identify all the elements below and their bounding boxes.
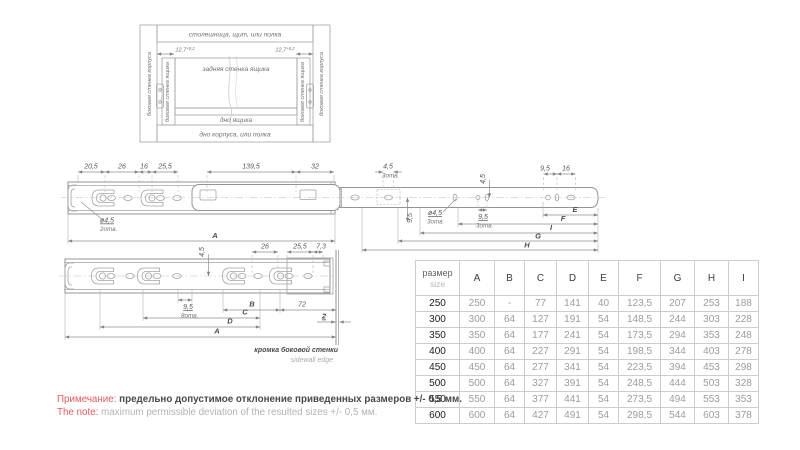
value-cell: 77 — [525, 296, 557, 312]
value-cell: 291 — [557, 344, 589, 360]
value-cell: 550 — [460, 392, 495, 408]
table-row: 550 550 64 377 441 54 273,5 494 553 353 — [416, 392, 759, 408]
value-cell: 273,5 — [619, 392, 661, 408]
value-cell: 127 — [525, 312, 557, 328]
dim-26: 26 — [117, 164, 126, 171]
note-line-ru: Примечание: предельно допустимое отклоне… — [57, 394, 462, 407]
dim-v4-5: 4,5 — [480, 174, 487, 184]
col-E: E — [589, 261, 619, 296]
value-cell: 64 — [495, 360, 525, 376]
value-cell: 64 — [495, 408, 525, 424]
dim-r9-5: 9,5 — [540, 166, 550, 173]
value-cell: 228 — [729, 312, 759, 328]
value-cell: 227 — [525, 344, 557, 360]
value-cell: 327 — [525, 376, 557, 392]
dim-F: F — [561, 214, 566, 223]
col-G: G — [661, 261, 695, 296]
table-header-row: размер size A B C D E F G H I — [416, 261, 759, 296]
installation-diagram: 12,7+0,2 12,7+0,2 столешница, щит, или п… — [133, 12, 333, 147]
slide-front-view — [59, 250, 339, 345]
dim-4-5-count: 3отв. — [382, 173, 399, 180]
top-panel-label: столешница, щит, или полка — [189, 32, 282, 39]
table-row: 350 350 64 177 241 54 173,5 294 353 248 — [416, 328, 759, 344]
table-row: 600 600 64 427 491 54 298,5 544 603 378 — [416, 408, 759, 424]
dim-v9-5: 9,5 — [407, 213, 414, 223]
value-cell: 603 — [695, 408, 729, 424]
size-cell: 500 — [416, 376, 460, 392]
value-cell: 191 — [557, 312, 589, 328]
value-cell: 198,5 — [619, 344, 661, 360]
hole-dia-label: ø4,5 — [100, 218, 114, 225]
install-dimensions: 12,7+0,2 12,7+0,2 — [157, 46, 313, 54]
back-wall-label: задняя стенка ящика — [201, 65, 269, 73]
dim-9-5-count: 3отв. — [476, 223, 493, 230]
value-cell: 494 — [661, 392, 695, 408]
col-F: F — [619, 261, 661, 296]
note-label-ru: Примечание: — [57, 394, 116, 405]
dim-4-5: 4,5 — [383, 164, 393, 171]
slide-bracket-left — [157, 84, 164, 108]
dim-f9-5-count: 8отв. — [181, 313, 198, 320]
value-cell: 188 — [729, 296, 759, 312]
value-cell: 300 — [460, 312, 495, 328]
value-cell: 64 — [495, 376, 525, 392]
gap-dim-right: 12,7+0,2 — [275, 46, 295, 54]
col-B: B — [495, 261, 525, 296]
hole-count-label-2: 3отв. — [427, 219, 444, 226]
value-cell: 394 — [661, 360, 695, 376]
value-cell: 500 — [460, 376, 495, 392]
spec-sheet: 12,7+0,2 12,7+0,2 столешница, щит, или п… — [0, 0, 800, 450]
value-cell: 450 — [460, 360, 495, 376]
sidewall-edge-label-en: sidewall edge — [291, 357, 334, 364]
sidewall-edge-label-ru: кромка боковой стенки — [254, 346, 338, 354]
size-cell: 350 — [416, 328, 460, 344]
right-drawer-wall-label: боковая стенка ящика — [300, 62, 306, 122]
note-text-en: maximum permissible deviation of the res… — [101, 407, 377, 418]
value-cell: 403 — [695, 344, 729, 360]
drawer-bottom-label: дно ящика — [220, 116, 253, 124]
value-cell: 54 — [589, 376, 619, 392]
size-cell: 400 — [416, 344, 460, 360]
table-row: 500 500 64 327 391 54 248,5 444 503 328 — [416, 376, 759, 392]
value-cell: 123,5 — [619, 296, 661, 312]
note-label-en: The note: — [57, 407, 98, 418]
value-cell: 391 — [557, 376, 589, 392]
size-cell: 300 — [416, 312, 460, 328]
value-cell: 353 — [729, 392, 759, 408]
value-cell: 54 — [589, 328, 619, 344]
value-cell: 503 — [695, 376, 729, 392]
value-cell: 64 — [495, 328, 525, 344]
right-body-wall-label: боковая стенка корпуса — [319, 52, 325, 116]
table-row: 400 400 64 227 291 54 198,5 344 403 278 — [416, 344, 759, 360]
slide-top-view — [61, 182, 605, 214]
value-cell: 278 — [729, 344, 759, 360]
dim-C: C — [242, 308, 248, 317]
value-cell: 553 — [695, 392, 729, 408]
value-cell: 303 — [695, 312, 729, 328]
dim-I: I — [550, 223, 553, 232]
dim-G: G — [535, 232, 541, 241]
dim-f25-5: 25,5 — [292, 244, 307, 251]
dim-16: 16 — [140, 164, 148, 171]
left-drawer-wall-label: боковая стенка ящика — [165, 62, 171, 122]
dimensions-table: размер size A B C D E F G H I 250 250 - … — [415, 260, 759, 424]
value-cell: 244 — [661, 312, 695, 328]
value-cell: 40 — [589, 296, 619, 312]
dim-32: 32 — [311, 164, 319, 171]
value-cell: 441 — [557, 392, 589, 408]
col-C: C — [525, 261, 557, 296]
dim-r16: 16 — [562, 166, 570, 173]
value-cell: 207 — [661, 296, 695, 312]
bottom-panel-label: дно корпуса, или полка — [199, 131, 271, 139]
dim-A-front: A — [213, 327, 219, 336]
value-cell: 378 — [729, 408, 759, 424]
value-cell: 141 — [557, 296, 589, 312]
value-cell: 298 — [729, 360, 759, 376]
dim-20-5: 20,5 — [83, 164, 98, 171]
value-cell: 248,5 — [619, 376, 661, 392]
value-cell: 298,5 — [619, 408, 661, 424]
dim-139-5: 139,5 — [242, 164, 260, 171]
value-cell: 277 — [525, 360, 557, 376]
value-cell: 444 — [661, 376, 695, 392]
dim-f26: 26 — [260, 244, 269, 251]
value-cell: 223,5 — [619, 360, 661, 376]
value-cell: - — [495, 296, 525, 312]
value-cell: 54 — [589, 344, 619, 360]
value-cell: 54 — [589, 392, 619, 408]
left-body-wall-label: боковая стенка корпуса — [147, 52, 153, 116]
dim-fv4-5: 4,5 — [199, 247, 206, 257]
size-header-ru: размер — [416, 268, 459, 279]
dim-72: 72 — [298, 302, 306, 309]
front-view-dimensions: 26 25,5 7,3 4,5 9,5 8отв. B 72 C — [65, 244, 351, 365]
value-cell: 54 — [589, 408, 619, 424]
value-cell: 453 — [695, 360, 729, 376]
size-cell: 250 — [416, 296, 460, 312]
gap-dim-left: 12,7+0,2 — [175, 46, 195, 54]
value-cell: 600 — [460, 408, 495, 424]
col-H: H — [695, 261, 729, 296]
value-cell: 353 — [695, 328, 729, 344]
value-cell: 148,5 — [619, 312, 661, 328]
value-cell: 400 — [460, 344, 495, 360]
value-cell: 177 — [525, 328, 557, 344]
hole-dia-label-2: ø4,5 — [428, 210, 442, 217]
value-cell: 294 — [661, 328, 695, 344]
col-I: I — [729, 261, 759, 296]
dim-9-5: 9,5 — [478, 214, 488, 221]
value-cell: 64 — [495, 392, 525, 408]
value-cell: 173,5 — [619, 328, 661, 344]
value-cell: 344 — [661, 344, 695, 360]
dim-A-top: A — [211, 231, 217, 240]
dim-f9-5: 9,5 — [183, 304, 193, 311]
size-cell: 450 — [416, 360, 460, 376]
note-line-en: The note: maximum permissible deviation … — [57, 407, 462, 420]
value-cell: 64 — [495, 312, 525, 328]
value-cell: 54 — [589, 312, 619, 328]
size-header-en: size — [416, 279, 459, 289]
table-row: 450 450 64 277 341 54 223,5 394 453 298 — [416, 360, 759, 376]
table-row: 300 300 64 127 191 54 148,5 244 303 228 — [416, 312, 759, 328]
value-cell: 253 — [695, 296, 729, 312]
col-D: D — [557, 261, 589, 296]
value-cell: 248 — [729, 328, 759, 344]
value-cell: 64 — [495, 344, 525, 360]
dim-H: H — [524, 241, 530, 250]
value-cell: 427 — [525, 408, 557, 424]
dim-D: D — [227, 317, 233, 326]
dim-25-5: 25,5 — [157, 164, 172, 171]
value-cell: 328 — [729, 376, 759, 392]
dim-B: B — [249, 300, 255, 309]
size-header: размер size — [416, 261, 460, 296]
value-cell: 241 — [557, 328, 589, 344]
value-cell: 377 — [525, 392, 557, 408]
table-row: 250 250 - 77 141 40 123,5 207 253 188 — [416, 296, 759, 312]
dim-2: 2 — [321, 312, 327, 321]
value-cell: 350 — [460, 328, 495, 344]
note-text-ru: предельно допустимое отклонение приведен… — [119, 394, 462, 405]
value-cell: 491 — [557, 408, 589, 424]
dim-f7-3: 7,3 — [316, 244, 326, 251]
note: Примечание: предельно допустимое отклоне… — [57, 394, 462, 419]
value-cell: 341 — [557, 360, 589, 376]
value-cell: 544 — [661, 408, 695, 424]
value-cell: 250 — [460, 296, 495, 312]
col-A: A — [460, 261, 495, 296]
hole-count-label: 2отв. — [99, 226, 117, 233]
value-cell: 54 — [589, 360, 619, 376]
